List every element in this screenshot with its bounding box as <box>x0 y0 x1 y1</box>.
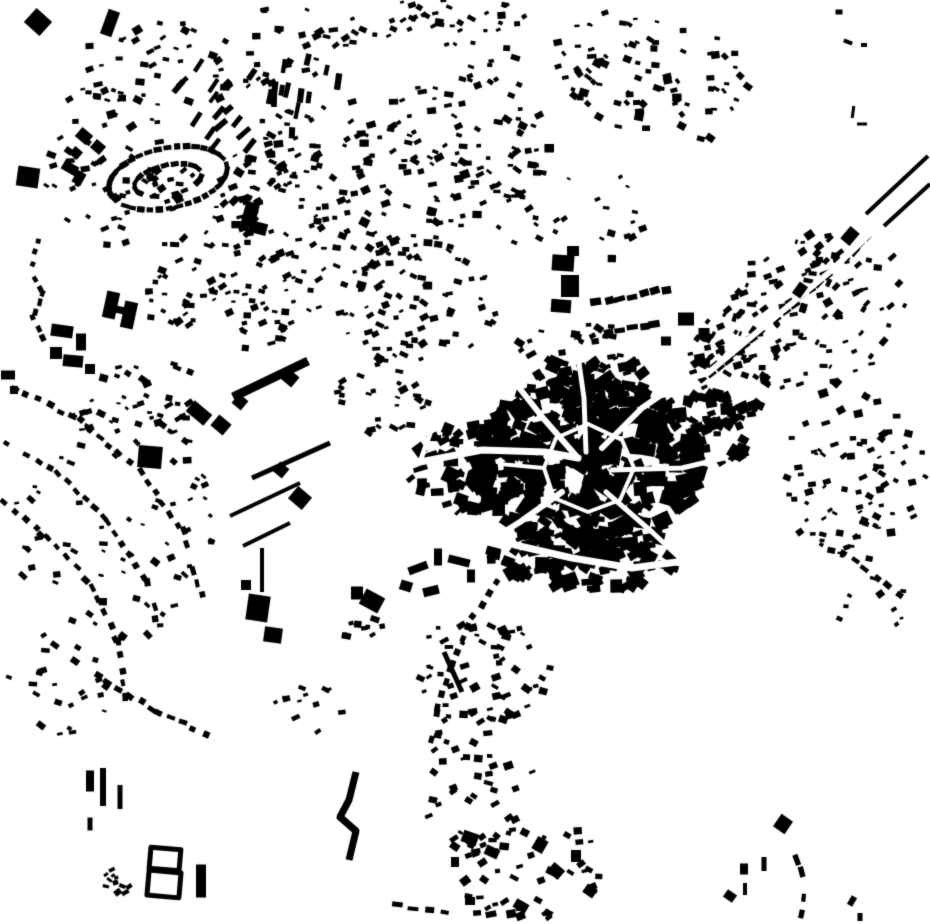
figure-ground-map-canvas <box>0 0 930 924</box>
map-viewport <box>0 0 930 924</box>
